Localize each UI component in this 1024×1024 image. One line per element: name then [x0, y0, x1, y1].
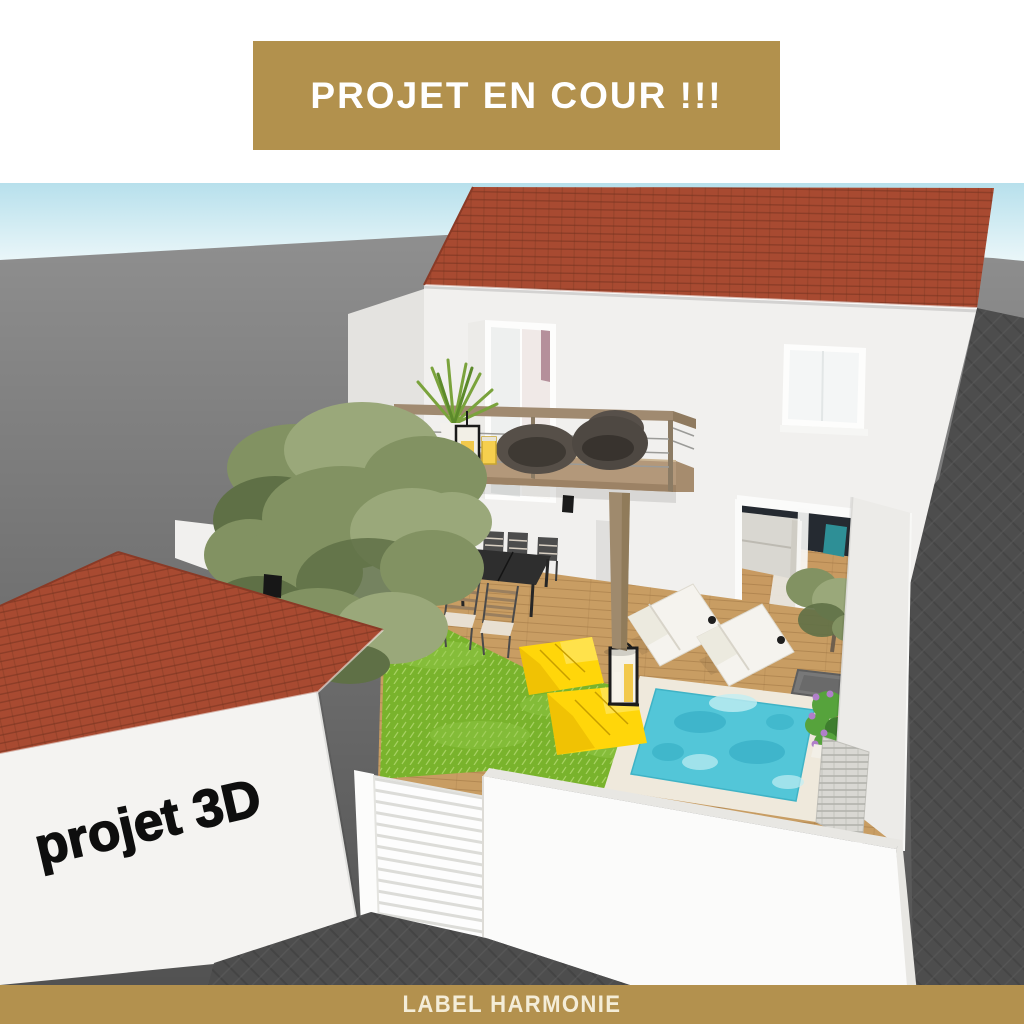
teal-chair	[823, 524, 847, 557]
rattan-chair	[496, 424, 578, 474]
top-banner: PROJET EN COUR !!!	[253, 41, 780, 150]
annex-building	[0, 552, 383, 985]
bottom-bar: LABEL HARMONIE	[0, 985, 1024, 1024]
wall-lamp-icon	[263, 574, 282, 598]
scene-3d-render	[0, 0, 1024, 1024]
upper-window	[780, 344, 868, 436]
top-banner-label: PROJET EN COUR !!!	[310, 75, 722, 117]
white-candle	[614, 672, 621, 702]
bottom-bar-label: LABEL HARMONIE	[403, 991, 622, 1019]
yellow-candle	[624, 664, 633, 702]
bedroom-mauve-wall	[541, 330, 550, 382]
social-post: PROJET EN COUR !!! projet 3D LABEL HARMO…	[0, 0, 1024, 1024]
candle-jar	[482, 437, 496, 464]
